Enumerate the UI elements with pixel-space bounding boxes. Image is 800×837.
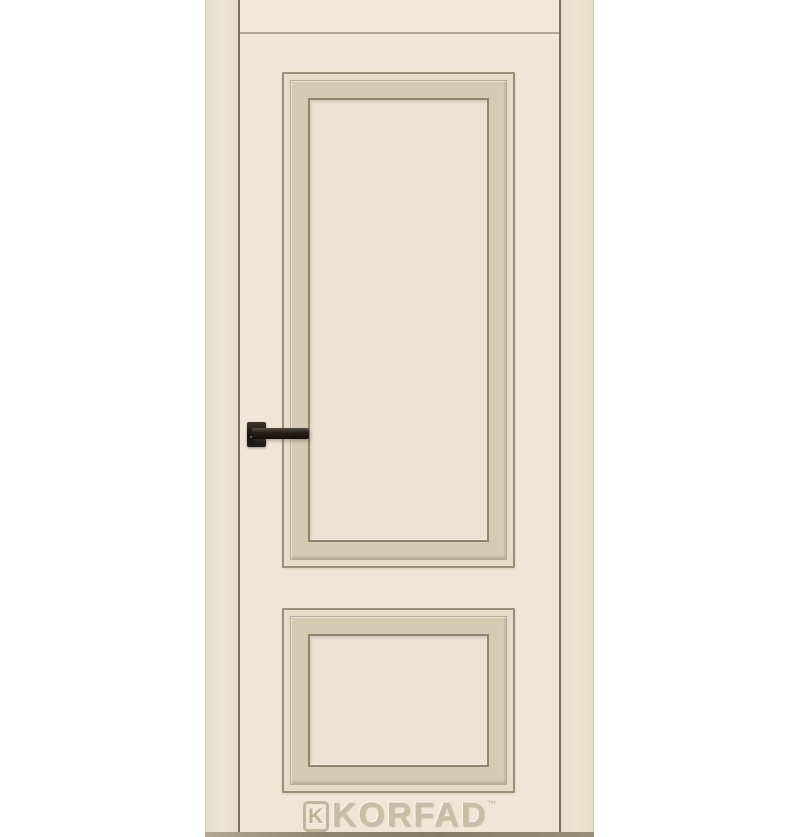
handle-lever xyxy=(252,428,309,439)
lower-panel-molding xyxy=(282,608,515,793)
door-assembly: K KORFAD ™ xyxy=(205,0,594,837)
upper-panel-molding-band xyxy=(290,80,507,560)
monogram-letter: K xyxy=(308,806,323,827)
upper-panel-molding xyxy=(282,72,515,568)
product-photo: K KORFAD ™ xyxy=(0,0,800,837)
korfad-monogram-icon: K xyxy=(303,801,329,832)
lower-panel-molding-band xyxy=(290,616,507,785)
door-frame-right xyxy=(561,0,594,837)
door-frame-left xyxy=(205,0,238,837)
brand-watermark: K KORFAD ™ xyxy=(240,798,559,832)
upper-panel-field xyxy=(308,98,489,542)
floor-shadow xyxy=(205,832,594,837)
door-top-rail xyxy=(240,0,559,32)
trademark-symbol: ™ xyxy=(487,799,496,809)
door-top-rail-line xyxy=(240,32,559,34)
door-leaf: K KORFAD ™ xyxy=(238,0,561,837)
lower-panel-field xyxy=(308,634,489,767)
brand-name: KORFAD xyxy=(332,798,488,832)
